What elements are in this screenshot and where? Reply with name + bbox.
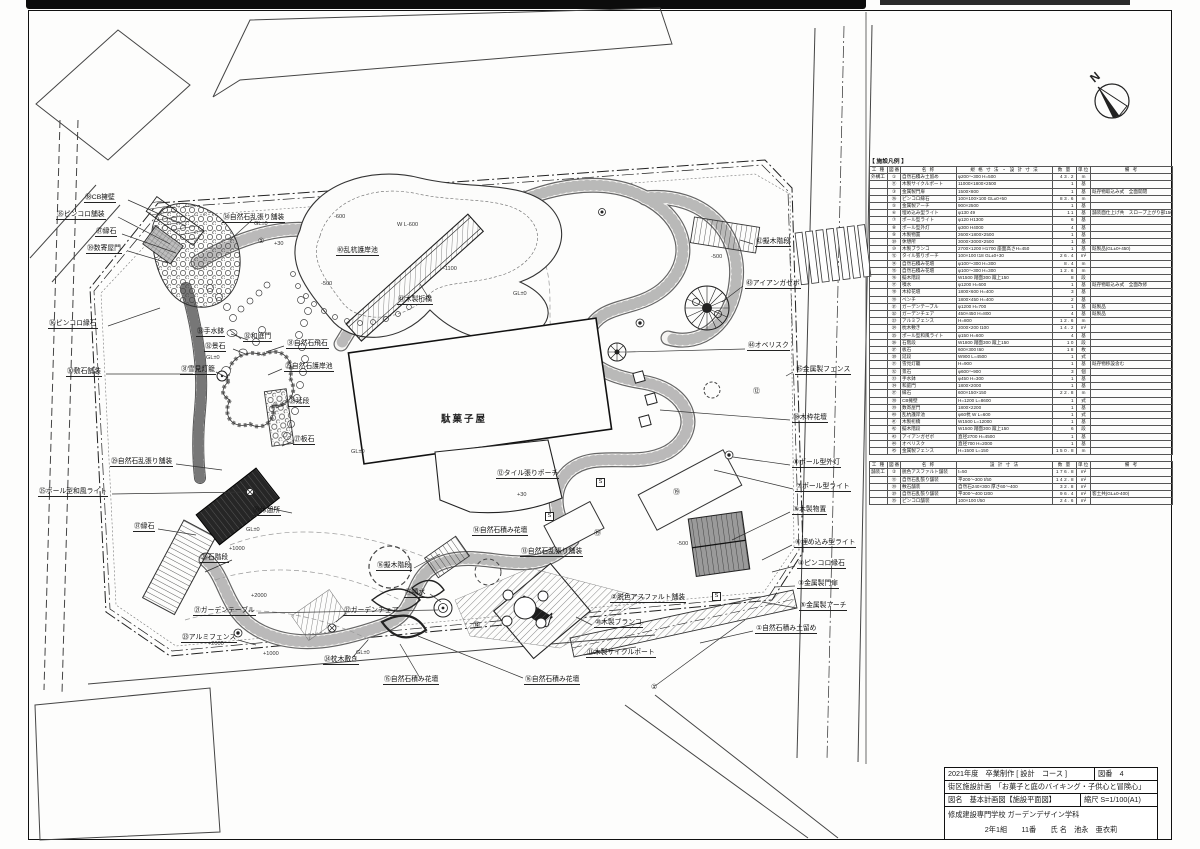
- plan-callout: ⑳休憩所: [252, 507, 281, 516]
- plan-callout: ⑦ポール型ライト: [795, 483, 851, 492]
- table-cell: [1091, 347, 1173, 354]
- plan-annotation: +1000: [262, 651, 280, 659]
- table-cell: ㉔: [888, 325, 901, 332]
- table-cell: [1091, 253, 1173, 260]
- materials-table: 工 種図番名 称規 格 寸 法 ・ 設 計 寸 法数 量単位備 考外構工①自然石…: [869, 166, 1173, 505]
- table-cell: ㉜: [888, 368, 901, 375]
- table-cell: 基: [1077, 419, 1091, 426]
- table-cell: 基: [1077, 361, 1091, 368]
- table-cell: 段: [1077, 426, 1091, 433]
- table-cell: 600×300 t60: [957, 347, 1053, 354]
- table-cell: ㊱: [888, 195, 901, 202]
- table-row: ㉝手水鉢φ450 H=3001基: [870, 375, 1173, 382]
- plan-annotation: GL±0: [253, 221, 269, 229]
- table-cell: 既製品: [1091, 303, 1173, 310]
- table-cell: H=800: [957, 318, 1053, 325]
- table-cell: 外構工: [870, 174, 888, 181]
- table-cell: [1091, 289, 1173, 296]
- table-cell: CB擁壁: [901, 397, 957, 404]
- plan-marker: S: [596, 478, 605, 487]
- table-cell: ㉕: [888, 332, 901, 339]
- table-cell: [1091, 217, 1173, 224]
- table-cell: 18: [1053, 347, 1077, 354]
- table-header-row: 工 種図番名 称設 計 寸 法数 量単位備 考: [870, 462, 1173, 469]
- table-cell: 基: [1077, 246, 1091, 253]
- table-cell: 142.8: [1053, 476, 1077, 483]
- table-cell: 式: [1077, 411, 1091, 418]
- table-cell: [1091, 224, 1173, 231]
- plan-callout: ㊸アイアンガゼボ: [745, 280, 801, 289]
- column-header: 図番: [888, 462, 901, 469]
- table-cell: φ150 H=600: [957, 332, 1053, 339]
- title-sheet-no: 図番 4: [1095, 768, 1157, 780]
- plan-callout: ㉑ガーデンテーブル: [193, 607, 256, 616]
- table-cell: [870, 282, 888, 289]
- table-cell: 1: [1053, 231, 1077, 238]
- table-cell: φ100〜300 H=300: [957, 267, 1053, 274]
- table-cell: [870, 260, 888, 267]
- table-cell: 基: [1077, 440, 1091, 447]
- plan-callout: ㊵乱杭護岸池: [336, 247, 379, 256]
- column-header: 工 種: [870, 167, 888, 174]
- table-cell: φ60杭 W L=600: [957, 411, 1053, 418]
- table-cell: [870, 368, 888, 375]
- table-cell: [1091, 368, 1173, 375]
- table-cell: 直径700 H=2000: [957, 440, 1053, 447]
- plan-callout: ㉚敷石舗装: [66, 368, 102, 377]
- table-cell: 1: [1053, 375, 1077, 382]
- table-cell: ㊹: [888, 440, 901, 447]
- table-cell: [1091, 332, 1173, 339]
- table-row: ㉜景石φ600〜9003個: [870, 368, 1173, 375]
- table-cell: 敷石舗装: [901, 483, 957, 490]
- table-cell: [1091, 174, 1173, 181]
- table-cell: [1091, 404, 1173, 411]
- table-cell: [1091, 239, 1173, 246]
- table-cell: 枚: [1077, 347, 1091, 354]
- table-cell: φ100〜300 H=300: [957, 260, 1053, 267]
- table-row: ㉟ピンコロ舗装100×100 t/5024.6m²: [870, 498, 1173, 505]
- table-cell: [1091, 498, 1173, 505]
- table-row: ③金属製門扉1500×8001基既存物取込み式 全面開閉: [870, 188, 1173, 195]
- plan-callout: ②脱色アスファルト舗装: [610, 594, 686, 603]
- table-cell: φ600〜900: [957, 368, 1053, 375]
- plan-callout: ㉔枕木敷き: [323, 656, 359, 665]
- table-cell: 基: [1077, 303, 1091, 310]
- table-row: ㊶木製桁橋W1500 L=120001基: [870, 419, 1173, 426]
- table-cell: [870, 397, 888, 404]
- plan-annotation: GL±0: [512, 291, 528, 299]
- table-cell: 自然石積み花壇: [901, 260, 957, 267]
- column-header: 規 格 寸 法 ・ 設 計 寸 法: [957, 167, 1053, 174]
- table-cell: ①: [888, 174, 901, 181]
- table-cell: 基: [1077, 375, 1091, 382]
- plan-callout: ㉘延段: [288, 398, 310, 407]
- plan-callout: ⑧ポール型外灯: [792, 459, 841, 468]
- plan-callout: ㉒ガーデンチェア: [343, 607, 399, 616]
- plan-callout: ①自然石積み土留め: [755, 625, 817, 634]
- table-cell: 600×150×150: [957, 390, 1053, 397]
- table-row: ⑧ポール型外灯φ300 H40004基: [870, 224, 1173, 231]
- table-cell: [870, 498, 888, 505]
- plan-callout: 駄菓子屋: [440, 416, 488, 424]
- table-cell: [870, 426, 888, 433]
- table-cell: 450×450 H=800: [957, 311, 1053, 318]
- table-cell: 休憩所: [901, 239, 957, 246]
- plan-callout: ⑰噴水: [404, 589, 426, 598]
- table-cell: [870, 239, 888, 246]
- table-cell: 自然石積み花壇: [901, 267, 957, 274]
- table-cell: 直径2700 H=4500: [957, 433, 1053, 440]
- table-cell: m²: [1077, 498, 1091, 505]
- table-cell: 木製ブランコ: [901, 246, 957, 253]
- plan-callout: ⑪木製サイクルポート: [586, 649, 656, 658]
- table-cell: [870, 332, 888, 339]
- table-cell: 個: [1077, 368, 1091, 375]
- table-row: ㉔枕木敷き2000×200 t10014.2m²: [870, 325, 1173, 332]
- table-cell: 埋め込み型ライト: [901, 210, 957, 217]
- table-cell: W900 L=4500: [957, 354, 1053, 361]
- table-cell: 1: [1053, 188, 1077, 195]
- table-cell: 雪見灯籠: [901, 361, 957, 368]
- plan-callout: ㉗板石: [293, 436, 315, 445]
- plan-callout: ⑮自然石積み花壇: [383, 676, 439, 685]
- table-cell: 1: [1053, 440, 1077, 447]
- table-cell: ㉗: [888, 347, 901, 354]
- table-cell: ㉛: [888, 361, 901, 368]
- plan-callout: ⑫タイル張りポーチ: [496, 470, 559, 479]
- plan-callout: ㊴数寄屋門: [86, 245, 122, 254]
- table-cell: 12.6: [1053, 267, 1077, 274]
- table-cell: 96.4: [1053, 490, 1077, 497]
- table-cell: ㉒: [888, 311, 901, 318]
- plan-callout: ㊺金属製フェンス: [795, 366, 851, 375]
- table-cell: 基: [1077, 332, 1091, 339]
- table-cell: 和庭門: [901, 383, 957, 390]
- table-row: ⑮自然石積み花壇φ100〜300 H=30012.6m: [870, 267, 1173, 274]
- plan-callout: ⑩木製ブランコ: [594, 619, 643, 628]
- table-cell: [1091, 390, 1173, 397]
- table-cell: 100×100×100 GL±0+50: [957, 195, 1053, 202]
- column-header: 図番: [888, 167, 901, 174]
- plan-callout: ⑭: [472, 622, 481, 630]
- table-cell: ㊲: [888, 390, 901, 397]
- table-cell: ㊴: [888, 404, 901, 411]
- table-cell: [870, 275, 888, 282]
- plan-callout: ⑬自然石乱張り舗装: [520, 548, 583, 557]
- table-row: ㊴数寄屋門1800×22001基: [870, 404, 1173, 411]
- gib-stairs-topright: [690, 217, 759, 253]
- table-cell: [1091, 433, 1173, 440]
- table-cell: 基: [1077, 203, 1091, 210]
- table-cell: 既製品(GL±0+450): [1091, 246, 1173, 253]
- table-cell: W1500 踏面300 蹴上150: [957, 426, 1053, 433]
- north-arrow: N: [1087, 69, 1129, 118]
- table-row: ㉖石階段W1800 踏面300 蹴上15010段: [870, 339, 1173, 346]
- table-cell: 木製物置: [901, 231, 957, 238]
- table-cell: φ130 49: [957, 210, 1053, 217]
- table-row: 外構工①自然石積み土留めφ200〜300 H=50043.2m: [870, 174, 1173, 181]
- table-row: ⑬自然石乱張り舗装平200〜300 t/50142.8m²: [870, 476, 1173, 483]
- table-cell: 1: [1053, 203, 1077, 210]
- table-cell: 1: [1053, 239, 1077, 246]
- table-cell: ピンコロ縁石: [901, 195, 957, 202]
- table-cell: [1091, 354, 1173, 361]
- table-cell: 4: [1053, 224, 1077, 231]
- table-cell: [870, 188, 888, 195]
- table-cell: 83.6: [1053, 195, 1077, 202]
- table-row: ㉓アルミフェンスH=80012.6m: [870, 318, 1173, 325]
- plan-annotation: GL±0: [350, 449, 366, 457]
- plan-callout: ㊲縁石: [133, 523, 155, 532]
- table-cell: [870, 253, 888, 260]
- plan-callout: ㊳CB擁壁: [84, 194, 116, 203]
- project-title: 街区施設計画 「お菓子と庭のバイキング・子供心と冒険心」: [945, 781, 1157, 793]
- table-row: ㉙自然石乱張り舗装平300〜400 t20096.4m²客土共(GL±0-400…: [870, 490, 1173, 497]
- table-cell: 自然石積み土留め: [901, 174, 957, 181]
- table-cell: [1091, 469, 1173, 476]
- plan-callout: ㉜和庭門: [243, 333, 272, 342]
- table-cell: [870, 195, 888, 202]
- column-header: 名 称: [901, 462, 957, 469]
- plan-callout: ㉖石階段: [200, 554, 229, 563]
- table-cell: 基: [1077, 210, 1091, 217]
- table-cell: 1800×450 H=400: [957, 296, 1053, 303]
- table-cell: [870, 483, 888, 490]
- table-cell: ポール型ライト: [901, 217, 957, 224]
- table-cell: ㊶: [888, 419, 901, 426]
- table-cell: H=1500 L=150: [957, 447, 1053, 454]
- table-row: ㉒ガーデンチェア450×450 H=8004基既製品: [870, 311, 1173, 318]
- table-cell: ⑬: [888, 476, 901, 483]
- table-cell: ㉞: [888, 383, 901, 390]
- legend-title: 【 施設凡例 】: [869, 156, 1172, 165]
- table-cell: 縁石: [901, 390, 957, 397]
- column-header: 工 種: [870, 462, 888, 469]
- table-cell: 段: [1077, 275, 1091, 282]
- table-cell: 2600×1800×2500: [957, 231, 1053, 238]
- table-cell: W1500 踏面300 蹴上150: [957, 275, 1053, 282]
- table-row: ⑦ポール型ライトφ120 H13006基: [870, 217, 1173, 224]
- table-cell: ⑯: [888, 275, 901, 282]
- table-cell: 金属製アーチ: [901, 203, 957, 210]
- table-cell: 基: [1077, 311, 1091, 318]
- table-row: ㊸アイアンガゼボ直径2700 H=45001基: [870, 433, 1173, 440]
- table-cell: [870, 181, 888, 188]
- table-cell: 4: [1053, 332, 1077, 339]
- plan-callout: ⑨木製物置: [792, 506, 827, 515]
- plan-callout: ㉕ポール型和風ライト: [38, 488, 108, 497]
- table-cell: [870, 289, 888, 296]
- plan-annotation: GL±0: [245, 527, 261, 535]
- table-cell: 式: [1077, 354, 1091, 361]
- table-row: ⑯擬木階段W1500 踏面300 蹴上1508段: [870, 275, 1173, 282]
- column-header: 単位: [1077, 462, 1091, 469]
- table-cell: H=900: [957, 361, 1053, 368]
- table-cell: ㉘: [888, 354, 901, 361]
- table-cell: 1: [1053, 361, 1077, 368]
- table-cell: ㉑: [888, 303, 901, 310]
- column-header: 数 量: [1053, 167, 1077, 174]
- table-cell: [1091, 231, 1173, 238]
- table-cell: φ1200 H=700: [957, 303, 1053, 310]
- table-row: ⑫タイル張りポーチ100×100 t18 GL±0+3026.4m²: [870, 253, 1173, 260]
- table-cell: [1091, 325, 1173, 332]
- plan-annotation: -500: [676, 541, 689, 549]
- drawing-name: 図名 基本計画図【施設平面図】: [945, 794, 1081, 806]
- plan-callout: ⑯自然石積み花壇: [524, 676, 580, 685]
- table-cell: ピンコロ舗装: [901, 498, 957, 505]
- table-cell: 1: [1053, 433, 1077, 440]
- school-author: 修成建設専門学校 ガーデンデザイン学科 2年1組 11番 氏 名 池永 亜衣莉: [945, 807, 1157, 839]
- table-cell: 木製サイクルポート: [901, 181, 957, 188]
- table-cell: 900×2500: [957, 203, 1053, 210]
- table-cell: アルミフェンス: [901, 318, 957, 325]
- column-header: 名 称: [901, 167, 957, 174]
- table-cell: m²: [1077, 490, 1091, 497]
- table-cell: 10: [1053, 339, 1077, 346]
- plan-annotation: +30: [516, 492, 528, 500]
- wooden-shed: [688, 512, 750, 577]
- table-cell: t=50: [957, 469, 1053, 476]
- north-label-n: N: [1087, 69, 1103, 85]
- table-cell: [1091, 275, 1173, 282]
- table-cell: 自然石240×300 厚さ60〜400: [957, 483, 1053, 490]
- table-cell: 数寄屋門: [901, 404, 957, 411]
- table-cell: 板石: [901, 347, 957, 354]
- table-cell: 1: [1053, 404, 1077, 411]
- table-cell: [1091, 447, 1173, 454]
- plan-callout: ⑭自然石積み花壇: [472, 527, 528, 536]
- table-cell: 1500×800: [957, 188, 1053, 195]
- table-cell: m: [1077, 174, 1091, 181]
- table-row: ⑰噴水φ1200 H=6001基既存物取込み式 全面改修: [870, 282, 1173, 289]
- table-cell: 舗装工: [870, 469, 888, 476]
- table-cell: 木枠花壇: [901, 289, 957, 296]
- table-cell: [1091, 419, 1173, 426]
- table-cell: 1800×600 H=400: [957, 289, 1053, 296]
- table-cell: 擬木階段: [901, 426, 957, 433]
- table-cell: 延段: [901, 354, 957, 361]
- table-row: ㉛雪見灯籠H=9001基既存物移設含む: [870, 361, 1173, 368]
- table-cell: 14.2: [1053, 325, 1077, 332]
- table-cell: 基: [1077, 181, 1091, 188]
- table-cell: [870, 325, 888, 332]
- table-cell: m: [1077, 447, 1091, 454]
- table-cell: ㉝: [888, 375, 901, 382]
- table-cell: ㊸: [888, 433, 901, 440]
- column-header: 備 考: [1091, 462, 1173, 469]
- table-cell: [870, 217, 888, 224]
- table-cell: 1: [1053, 246, 1077, 253]
- table-cell: ⑥: [888, 210, 901, 217]
- table-cell: 1: [1053, 419, 1077, 426]
- table-cell: 3: [1053, 368, 1077, 375]
- table-row: ㊷擬木階段W1500 踏面300 蹴上1506段: [870, 426, 1173, 433]
- table-cell: [870, 231, 888, 238]
- table-cell: [870, 490, 888, 497]
- plan-annotation: W L-600: [396, 222, 419, 230]
- plan-callout: ③金属製門扉: [797, 580, 839, 589]
- table-cell: [870, 267, 888, 274]
- table-cell: 100×100 t/50: [957, 498, 1053, 505]
- table-cell: [870, 447, 888, 454]
- table-cell: 脱色アスファルト舗装: [901, 469, 957, 476]
- plan-callout: ㉛自然石飛石: [286, 340, 329, 349]
- table-cell: 段: [1077, 339, 1091, 346]
- table-cell: アイアンガゼボ: [901, 433, 957, 440]
- table-cell: 擬木階段: [901, 275, 957, 282]
- table-row: ㊺金属製フェンスH=1500 L=150150.8m: [870, 447, 1173, 454]
- table-cell: m²: [1077, 469, 1091, 476]
- plan-annotation: GL±0: [205, 355, 221, 363]
- table-cell: ポール型和風ライト: [901, 332, 957, 339]
- plan-annotation: +30: [273, 241, 285, 249]
- plan-annotation: -500: [710, 254, 723, 262]
- table-cell: m: [1077, 195, 1091, 202]
- table-row: ㉑ガーデンテーブルφ1200 H=7001基既製品: [870, 303, 1173, 310]
- table-cell: [870, 203, 888, 210]
- table-cell: 6: [1053, 426, 1077, 433]
- table-cell: 乱杭護岸池: [901, 411, 957, 418]
- table-cell: オベリスク: [901, 440, 957, 447]
- table-cell: m: [1077, 318, 1091, 325]
- table-cell: ガーデンテーブル: [901, 303, 957, 310]
- table-cell: [870, 433, 888, 440]
- table-row: ⑩木製ブランコ2700×1200 H1700 座面高さH=4501基既製品(GL…: [870, 246, 1173, 253]
- table-cell: W1800 踏面300 蹴上150: [957, 339, 1053, 346]
- table-cell: 既存物取込み式 全面開閉: [1091, 188, 1173, 195]
- table-cell: 枕木敷き: [901, 325, 957, 332]
- table-cell: [870, 383, 888, 390]
- table-cell: m²: [1077, 325, 1091, 332]
- table-cell: [870, 210, 888, 217]
- table-cell: 1: [1053, 397, 1077, 404]
- table-cell: H=1200 L=8600: [957, 397, 1053, 404]
- table-cell: [1091, 476, 1173, 483]
- column-header: 数 量: [1053, 462, 1077, 469]
- table-cell: [870, 224, 888, 231]
- table-cell: 8.4: [1053, 260, 1077, 267]
- plan-callout: ㉟ピンコロ舗装: [56, 211, 106, 220]
- table-row: ⑳休憩所3000×3000×25001基: [870, 239, 1173, 246]
- table-cell: φ300 H4000: [957, 224, 1053, 231]
- table-cell: [1091, 260, 1173, 267]
- table-row: ㊱ピンコロ縁石100×100×100 GL±0+5083.6m: [870, 195, 1173, 202]
- plan-callout: ㉛雪見灯籠: [180, 366, 216, 375]
- table-cell: [870, 303, 888, 310]
- table-cell: ⑫: [888, 253, 901, 260]
- table-row: ㉚敷石舗装自然石240×300 厚さ60〜40032.8m²: [870, 483, 1173, 490]
- table-cell: φ120 H1300: [957, 217, 1053, 224]
- table-cell: 基: [1077, 433, 1091, 440]
- table-cell: m: [1077, 260, 1091, 267]
- table-cell: φ200〜300 H=500: [957, 174, 1053, 181]
- table-cell: ②: [888, 469, 901, 476]
- table-cell: 11000×1800×2500: [957, 181, 1053, 188]
- title-year-course: 2021年度 卒業制作 [ 設計 コース ]: [945, 768, 1095, 780]
- plan-callout: ⑲: [593, 530, 602, 538]
- table-cell: 既存物取込み式 全面改修: [1091, 282, 1173, 289]
- table-cell: 基: [1077, 231, 1091, 238]
- table-cell: 既存物移設含む: [1091, 361, 1173, 368]
- table-cell: 1: [1053, 411, 1077, 418]
- plan-callout: ④ピンコロ縁石: [797, 560, 846, 569]
- table-cell: ㉚: [888, 483, 901, 490]
- table-cell: 100×100 t18 GL±0+30: [957, 253, 1053, 260]
- table-cell: 12.6: [1053, 318, 1077, 325]
- table-cell: 1: [1053, 181, 1077, 188]
